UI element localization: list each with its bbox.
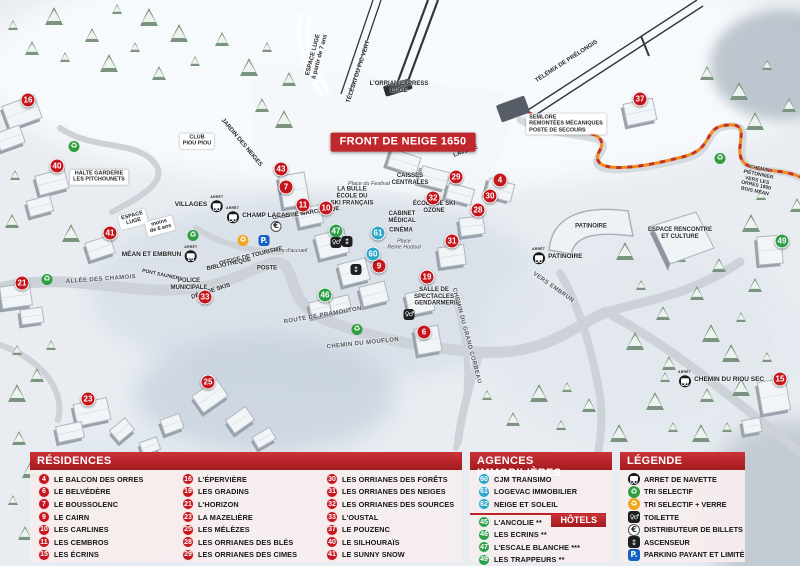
bus-stop-villages: VILLAGESARRÊT [175, 196, 224, 212]
map-marker-4: 4 [493, 173, 508, 188]
bus-stop-icon-wrap: ARRÊT [184, 246, 197, 262]
legende-item-distributeur-de-billets: €DISTRIBUTEUR DE BILLETS [620, 523, 745, 536]
map-marker-33: 33 [198, 290, 213, 305]
bus-stop-label: VILLAGES [175, 201, 208, 208]
recycle-green-icon: ♻ [628, 486, 640, 498]
bus-icon [185, 250, 197, 262]
bus-icon [628, 473, 640, 485]
residence-item-19: 19LES GRADINS [174, 486, 318, 499]
recycle-yellow-icon: ♻ [628, 498, 640, 510]
parking-icon: P. [628, 549, 640, 561]
map-marker-11: 11 [296, 198, 311, 213]
marker-badge-45: 45 [478, 516, 490, 528]
recycle-green-icon: ♻ [715, 153, 726, 164]
map-marker-29: 29 [449, 170, 464, 185]
legende-label: PARKING PAYANT ET LIMITÉ [644, 550, 745, 559]
residence-item-41: 41LE SUNNY SNOW [318, 549, 462, 562]
hotel-label: LES TRAPPEURS ** [494, 555, 565, 564]
marker-badge-28: 28 [182, 536, 194, 548]
elevator-icon: ↕ [342, 236, 353, 247]
residence-item-33: 33L'OUSTAL [318, 511, 462, 524]
residence-label: LES ÉCRINS [54, 550, 99, 559]
residence-label: L'OUSTAL [342, 513, 378, 522]
marker-badge-31: 31 [326, 486, 338, 498]
bus-stop-label: PATINOIRE [548, 253, 582, 260]
residence-label: L'HORIZON [198, 500, 239, 509]
arret-caption: ARRÊT [184, 246, 197, 250]
map-marker-28: 28 [471, 203, 486, 218]
legende-label: TRI SELECTIF + VERRE [644, 500, 727, 509]
residences-header: RÉSIDENCES [30, 452, 462, 470]
marker-badge-10: 10 [38, 524, 50, 536]
marker-badge-6: 6 [38, 486, 50, 498]
elevator-icon: ↕ [351, 264, 362, 275]
residence-item-23: 23LA MAZELIÈRE [174, 511, 318, 524]
map-marker-16: 16 [21, 93, 36, 108]
toilet-map-icon: ♀♂ [404, 303, 415, 321]
marker-badge-16: 16 [182, 473, 194, 485]
agences-header: AGENCES IMMOBILIÈRES [470, 452, 612, 470]
toilet-icon: ♀♂ [331, 237, 342, 248]
residence-label: LE CAIRN [54, 513, 89, 522]
marker-badge-32: 32 [326, 498, 338, 510]
toilet-map-icon: ♀♂ [331, 231, 342, 249]
legende-header: LÉGENDE [620, 452, 745, 470]
bus-stop-icon-wrap: ARRÊT [210, 196, 223, 212]
map-label-front-de-neige-1650: FRONT DE NEIGE 1650 [331, 133, 476, 152]
bus-stop-icon-wrap: ARRÊT [226, 207, 239, 223]
residence-label: LES ORRIANES DES FORÊTS [342, 475, 448, 484]
residences-section: RÉSIDENCES 4LE BALCON DES ORRES6LE BELVÉ… [30, 452, 462, 562]
residence-item-37: 37LE POUZENC [318, 523, 462, 536]
hotels-header: HÔTELS [551, 514, 606, 527]
residence-item-15: 15LES ÉCRINS [30, 549, 174, 562]
residence-item-28: 28LES ORRIANES DES BLÉS [174, 536, 318, 549]
residence-label: L'ÉPERVIÈRE [198, 475, 247, 484]
residence-item-21: 21L'HORIZON [174, 498, 318, 511]
agence-label: LOGEVAC IMMOBILIER [494, 487, 577, 496]
toilet-icon: ♀♂ [628, 511, 640, 523]
map-label-poste: POSTE [257, 266, 277, 273]
residence-label: LE BOUSSOLENC [54, 500, 118, 509]
marker-badge-46: 46 [478, 529, 490, 541]
agences-section: AGENCES IMMOBILIÈRES 60CJM TRANSIMO61LOG… [470, 452, 612, 562]
marker-badge-21: 21 [182, 498, 194, 510]
agence-label: CJM TRANSIMO [494, 475, 552, 484]
map-label-l-orrian-express: L'ORRIAN EXPRESS LUGE [370, 81, 429, 95]
map-label-patinoire: PATINOIRE [575, 224, 607, 231]
marker-badge-15: 15 [38, 549, 50, 561]
arret-caption: ARRÊT [210, 196, 223, 200]
parking-icon: P. [259, 235, 270, 246]
recycle-green-icon: ♻ [352, 324, 363, 335]
residence-item-32: 32LES ORRIANES DES SOURCES [318, 498, 462, 511]
residences-column-1: 4LE BALCON DES ORRES6LE BELVÉDÈRE7LE BOU… [30, 473, 174, 562]
map-marker-43: 43 [274, 162, 289, 177]
residence-item-10: 10LES CARLINES [30, 523, 174, 536]
bus-stop-icon-wrap: ARRÊT [678, 371, 691, 387]
legende-item-ascenseur: ↕ASCENSEUR [620, 536, 745, 549]
toilet-icon: ♀♂ [404, 309, 415, 320]
bus-icon [533, 252, 545, 264]
arret-caption: ARRÊT [678, 371, 691, 375]
residence-label: LES ORRIANES DES BLÉS [198, 538, 293, 547]
map-marker-37: 37 [633, 92, 648, 107]
marker-badge-4: 4 [38, 473, 50, 485]
map-marker-19: 19 [420, 270, 435, 285]
residence-item-40: 40LE SILHOURAÏS [318, 536, 462, 549]
bus-icon [211, 200, 223, 212]
marker-badge-19: 19 [182, 486, 194, 498]
legende-label: ARRET DE NAVETTE [644, 475, 717, 484]
legende-label: TOILETTE [644, 513, 679, 522]
hotel-label: L'ANCOLIE ** [494, 518, 542, 527]
marker-badge-33: 33 [326, 511, 338, 523]
map-label-club: CLUB PIOU PIOU [180, 134, 214, 149]
map-marker-7: 7 [279, 180, 294, 195]
residence-label: LES GRADINS [198, 487, 249, 496]
hotel-label: L'ESCALE BLANCHE *** [494, 543, 580, 552]
map-marker-25: 25 [201, 375, 216, 390]
recycle-green-map-icon: ♻ [42, 268, 53, 286]
recycle-green-map-icon: ♻ [715, 147, 726, 165]
marker-badge-30: 30 [326, 473, 338, 485]
arret-caption: ARRÊT [532, 248, 545, 252]
legende-section: LÉGENDE ARRET DE NAVETTE♻TRI SELECTIF♻TR… [620, 452, 745, 562]
bus-stop-label: MÉAN ET EMBRUN [122, 251, 182, 258]
residence-label: LE SILHOURAÏS [342, 538, 400, 547]
map-marker-6: 6 [417, 325, 432, 340]
recycle-green-icon: ♻ [69, 141, 80, 152]
marker-badge-9: 9 [38, 511, 50, 523]
residence-label: LA MAZELIÈRE [198, 513, 253, 522]
map-marker-46: 46 [318, 288, 333, 303]
residence-label: LE POUZENC [342, 525, 390, 534]
residence-item-7: 7LE BOUSSOLENC [30, 498, 174, 511]
residences-column-2: 16L'ÉPERVIÈRE19LES GRADINS21L'HORIZON23L… [174, 473, 318, 562]
map-label-cabinet: CABINET MÉDICAL [388, 211, 415, 225]
agence-item-62: 62NEIGE ET SOLEIL [470, 498, 612, 511]
map-marker-41: 41 [103, 226, 118, 241]
residence-label: LE BALCON DES ORRES [54, 475, 143, 484]
residence-label: LE SUNNY SNOW [342, 550, 405, 559]
marker-badge-47: 47 [478, 541, 490, 553]
map-label-halte-garderie: HALTE GARDERIE LES PITCHOUNETS [70, 170, 128, 185]
agence-label: NEIGE ET SOLEIL [494, 500, 558, 509]
recycle-green-map-icon: ♻ [69, 135, 80, 153]
bus-stop-label: CHAMP LACAS [242, 212, 290, 219]
marker-badge-60: 60 [478, 473, 490, 485]
arret-caption: ARRÊT [226, 207, 239, 211]
legende-item-toilette: ♀♂TOILETTE [620, 511, 745, 524]
parking-map-icon: P. [259, 230, 270, 248]
residences-column-3: 30LES ORRIANES DES FORÊTS31LES ORRIANES … [318, 473, 462, 562]
map-marker-61: 61 [371, 226, 386, 241]
residence-item-16: 16L'ÉPERVIÈRE [174, 473, 318, 486]
map-marker-30: 30 [483, 189, 498, 204]
recycle-yellow-icon: ♻ [238, 235, 249, 246]
map-label-salle-de: SALLE DE SPECTACLES [414, 287, 454, 301]
marker-badge-23: 23 [182, 511, 194, 523]
marker-badge-62: 62 [478, 498, 490, 510]
bus-icon [227, 211, 239, 223]
elevator-map-icon: ↕ [351, 259, 362, 277]
map-label-la-bulle: LA BULLE ÉCOLE DU SKI FRANÇAIS [331, 187, 374, 208]
residence-item-4: 4LE BALCON DES ORRES [30, 473, 174, 486]
residence-label: LES CEMBROS [54, 538, 109, 547]
marker-badge-49: 49 [478, 554, 490, 566]
elevator-map-icon: ↕ [342, 231, 353, 249]
residence-item-30: 30LES ORRIANES DES FORÊTS [318, 473, 462, 486]
map-label-place: Place Reine Hodoul [387, 239, 420, 252]
recycle-green-icon: ♻ [42, 274, 53, 285]
legende-item-arret-de-navette: ARRET DE NAVETTE [620, 473, 745, 486]
hotels-subsection: HÔTELS 45L'ANCOLIE **46LES ECRINS **47L'… [470, 513, 606, 566]
residence-label: LES CARLINES [54, 525, 109, 534]
marker-badge-37: 37 [326, 524, 338, 536]
legende-label: ASCENSEUR [644, 538, 690, 547]
marker-badge-40: 40 [326, 536, 338, 548]
bus-stop-patinoire: ARRÊTPATINOIRE [532, 248, 583, 264]
residence-item-31: 31LES ORRIANES DES NEIGES [318, 486, 462, 499]
marker-badge-29: 29 [182, 549, 194, 561]
hotel-item-49: 49LES TRAPPEURS ** [470, 554, 606, 566]
residence-label: LES ORRIANES DES NEIGES [342, 487, 446, 496]
map-label-semlore: SEMLORE REMONTÉES MÉCANIQUES POSTE DE SE… [526, 114, 606, 135]
recycle-yellow-map-icon: ♻ [238, 229, 249, 247]
legende-item-parking-payant-et-limit: P.PARKING PAYANT ET LIMITÉ [620, 549, 745, 562]
euro-icon: € [628, 524, 640, 536]
legende-item-tri-selectif: ♻TRI SELECTIF [620, 486, 745, 499]
map-marker-60: 60 [366, 247, 381, 262]
map-marker-21: 21 [15, 276, 30, 291]
marker-badge-11: 11 [38, 536, 50, 548]
recycle-green-icon: ♻ [188, 230, 199, 241]
bus-stop-champ-lacas: ARRÊTCHAMP LACAS [226, 207, 290, 223]
legend-panel: RÉSIDENCES 4LE BALCON DES ORRES6LE BELVÉ… [30, 452, 745, 562]
recycle-green-map-icon: ♻ [188, 224, 199, 242]
bus-stop-label: CHEMIN DU RIOU SEC [694, 376, 764, 383]
legende-label: TRI SELECTIF [644, 487, 693, 496]
residence-item-29: 29LES ORRIANES DES CIMES [174, 549, 318, 562]
legende-item-tri-selectif-verre: ♻TRI SELECTIF + VERRE [620, 498, 745, 511]
map-label-caisses: CAISSES CENTRALES [392, 173, 429, 187]
map-label-espace-rencontre: ESPACE RENCONTRE ET CULTURE [648, 227, 712, 241]
residence-label: LES ORRIANES DES SOURCES [342, 500, 454, 509]
elevator-icon: ↕ [628, 536, 640, 548]
hotel-item-47: 47L'ESCALE BLANCHE *** [470, 541, 606, 554]
bus-stop-icon-wrap: ARRÊT [532, 248, 545, 264]
residence-label: LE BELVÉDÈRE [54, 487, 111, 496]
agence-item-61: 61LOGEVAC IMMOBILIER [470, 486, 612, 499]
map-marker-40: 40 [50, 159, 65, 174]
residence-label: LES MÉLÈZES [198, 525, 250, 534]
recycle-green-map-icon: ♻ [352, 318, 363, 336]
marker-badge-7: 7 [38, 498, 50, 510]
map-marker-15: 15 [773, 372, 788, 387]
residence-item-9: 9LE CAIRN [30, 511, 174, 524]
marker-badge-41: 41 [326, 549, 338, 561]
residence-label: LES ORRIANES DES CIMES [198, 550, 297, 559]
map-marker-32: 32 [426, 191, 441, 206]
hotel-item-46: 46LES ECRINS ** [470, 528, 606, 541]
residence-item-25: 25LES MÉLÈZES [174, 523, 318, 536]
legende-label: DISTRIBUTEUR DE BILLETS [644, 525, 743, 534]
residence-item-6: 6LE BELVÉDÈRE [30, 486, 174, 499]
resort-map-page: FRONT DE NEIGE 1650SEMLORE REMONTÉES MÉC… [0, 0, 800, 566]
map-label-cin-ma: CINÉMA [389, 228, 413, 235]
hotel-label: LES ECRINS ** [494, 530, 547, 539]
map-marker-10: 10 [319, 201, 334, 216]
map-marker-49: 49 [775, 234, 790, 249]
bus-stop-chemin-du-riou-sec: ARRÊTCHEMIN DU RIOU SEC [678, 371, 764, 387]
bus-icon [679, 375, 691, 387]
bus-stop-m-an-et-embrun: MÉAN ET EMBRUNARRÊT [122, 246, 198, 262]
marker-badge-25: 25 [182, 524, 194, 536]
map-marker-31: 31 [445, 234, 460, 249]
marker-badge-61: 61 [478, 486, 490, 498]
residence-item-11: 11LES CEMBROS [30, 536, 174, 549]
map-label-place-du-festival: Place du Festival [348, 181, 390, 187]
map-marker-23: 23 [81, 392, 96, 407]
